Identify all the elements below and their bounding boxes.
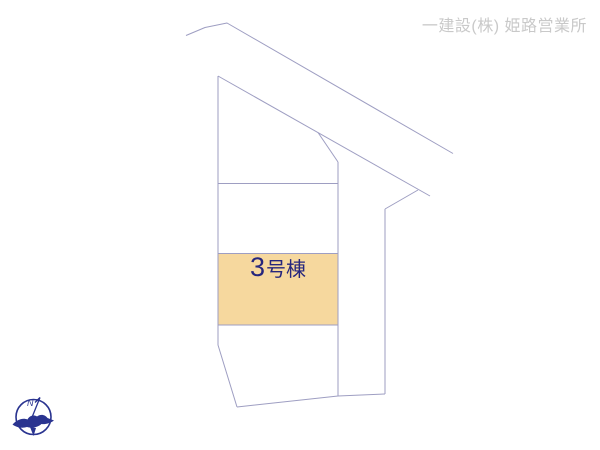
south-boundary bbox=[237, 394, 385, 407]
highlighted-plot bbox=[218, 254, 338, 326]
road-inner-edge bbox=[218, 76, 430, 196]
plot-corner-cut-east bbox=[385, 190, 418, 209]
company-watermark: 一建設(株) 姫路営業所 bbox=[422, 12, 587, 36]
west-boundary bbox=[218, 76, 237, 407]
site-plan-page: 3 号棟 一建設(株) 姫路営業所 N bbox=[0, 0, 600, 450]
site-plan-svg bbox=[0, 0, 600, 450]
plot-corner-cut-west bbox=[318, 133, 338, 163]
